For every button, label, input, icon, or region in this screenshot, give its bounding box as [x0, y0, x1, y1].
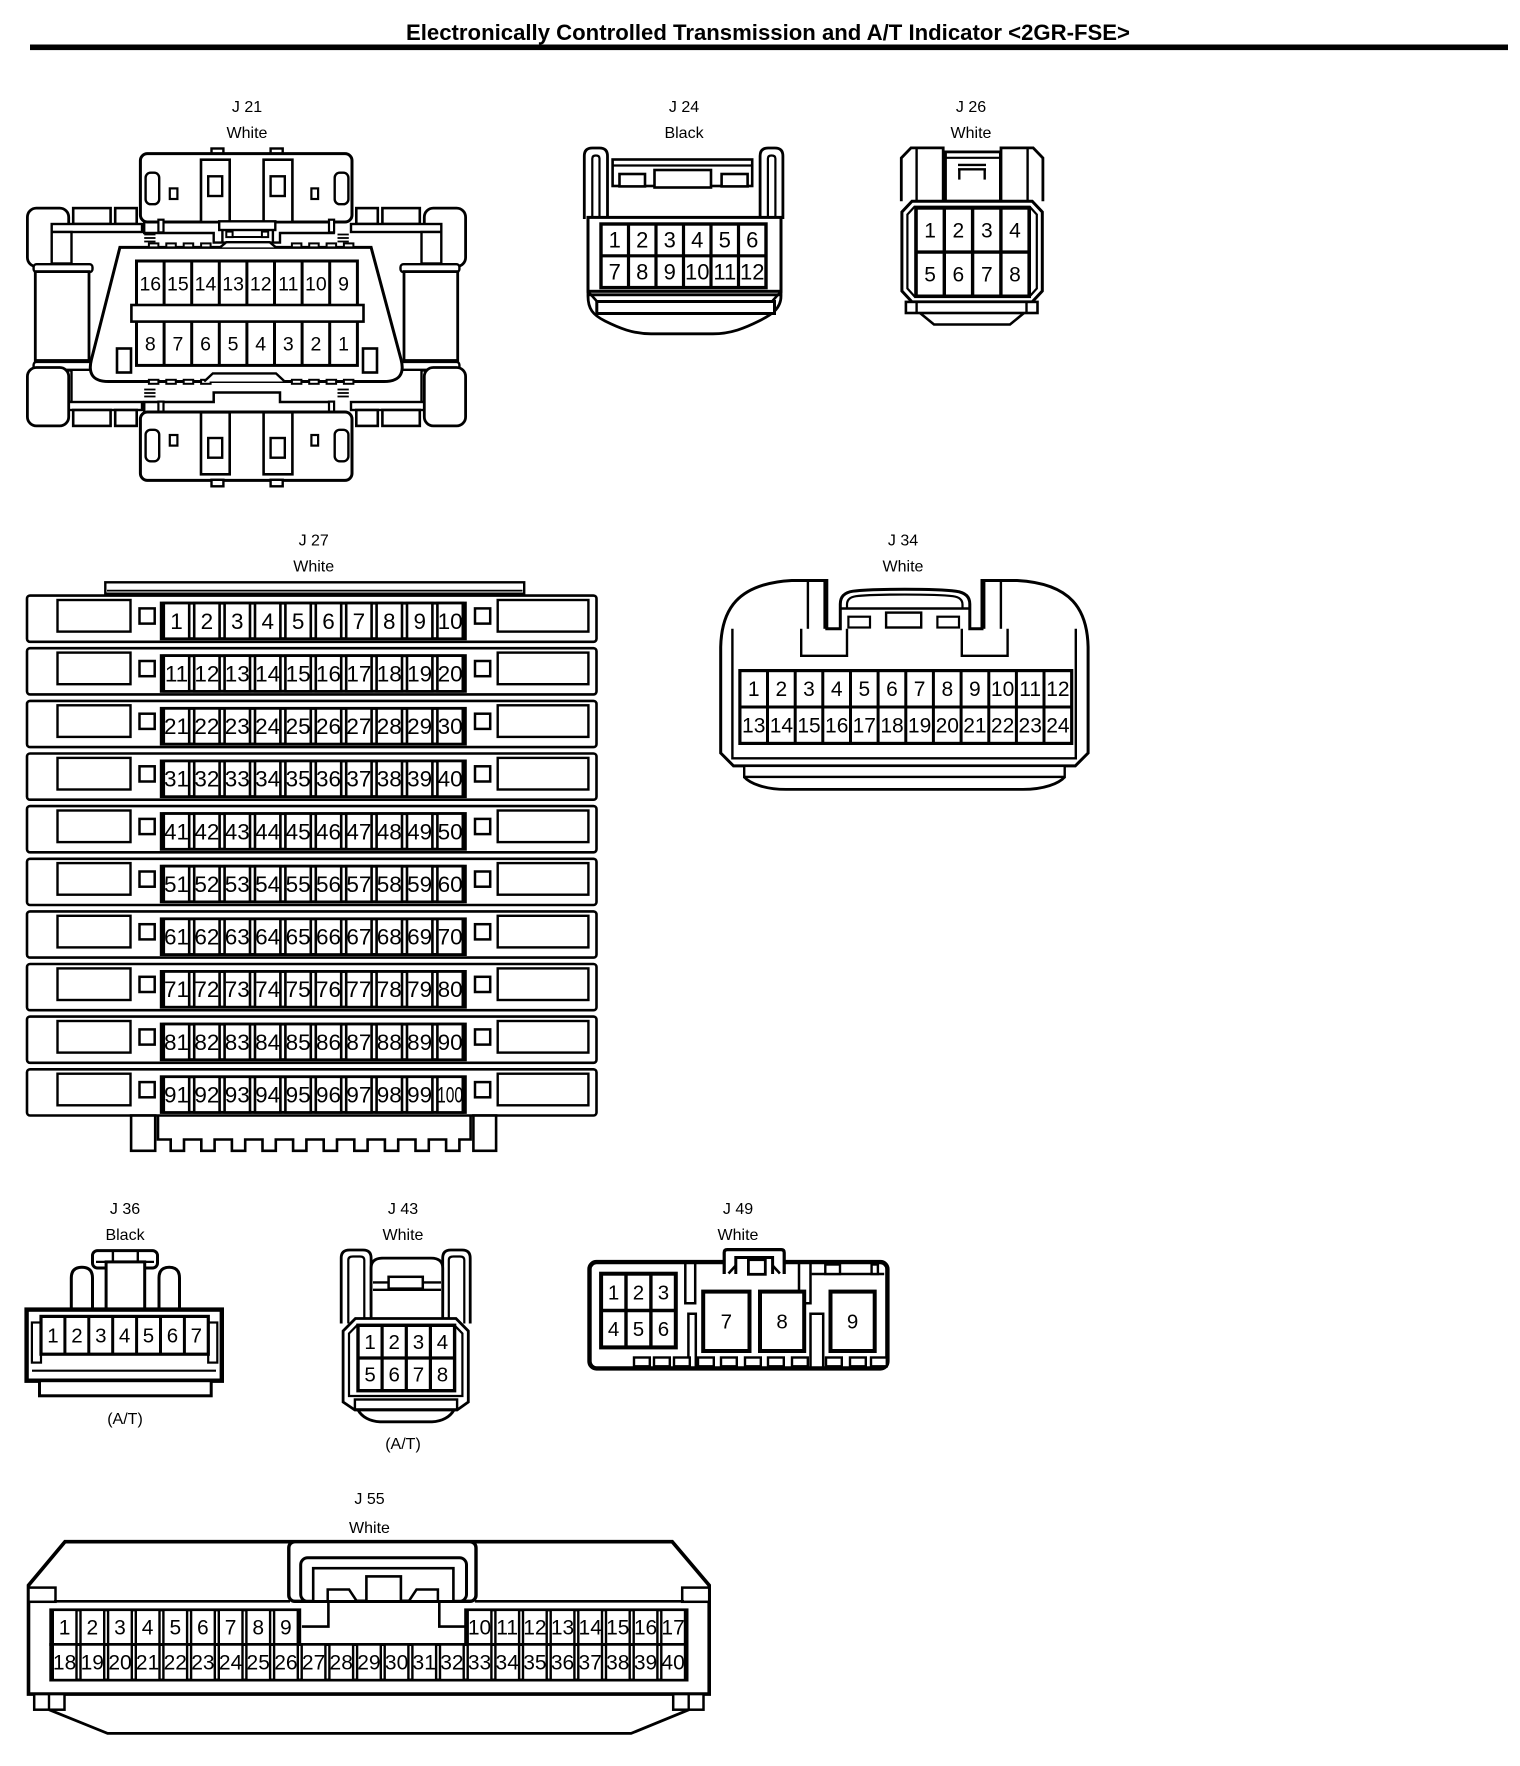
svg-text:Black: Black — [664, 125, 704, 142]
svg-text:60: 60 — [438, 872, 463, 897]
svg-text:20: 20 — [438, 661, 463, 686]
svg-text:(A/T): (A/T) — [385, 1436, 421, 1453]
svg-text:53: 53 — [225, 872, 250, 897]
svg-text:99: 99 — [407, 1083, 432, 1108]
svg-text:10: 10 — [685, 259, 709, 284]
svg-text:29: 29 — [407, 714, 432, 739]
svg-text:12: 12 — [740, 259, 764, 284]
svg-text:8: 8 — [941, 678, 953, 701]
svg-text:68: 68 — [377, 925, 402, 950]
svg-text:20: 20 — [936, 715, 959, 738]
svg-text:38: 38 — [377, 767, 402, 792]
svg-text:16: 16 — [825, 715, 848, 738]
svg-text:8: 8 — [776, 1311, 787, 1334]
svg-text:5: 5 — [719, 228, 731, 253]
svg-text:9: 9 — [280, 1617, 292, 1640]
svg-text:12: 12 — [250, 273, 272, 295]
svg-text:57: 57 — [346, 872, 371, 897]
svg-text:15: 15 — [606, 1617, 629, 1640]
svg-text:26: 26 — [274, 1652, 297, 1675]
svg-text:White: White — [951, 125, 992, 142]
svg-text:38: 38 — [606, 1652, 629, 1675]
svg-text:14: 14 — [770, 715, 794, 738]
svg-text:8: 8 — [1009, 264, 1021, 287]
svg-text:74: 74 — [255, 977, 280, 1002]
svg-text:52: 52 — [194, 872, 219, 897]
svg-text:63: 63 — [225, 925, 250, 950]
svg-text:12: 12 — [523, 1617, 546, 1640]
svg-text:15: 15 — [286, 661, 311, 686]
svg-text:16: 16 — [634, 1617, 657, 1640]
svg-text:J 55: J 55 — [354, 1491, 384, 1508]
svg-text:4: 4 — [255, 333, 266, 355]
svg-text:22: 22 — [194, 714, 219, 739]
svg-text:7: 7 — [191, 1325, 202, 1348]
svg-text:(A/T): (A/T) — [107, 1411, 143, 1428]
svg-text:Electronically Controlled Tran: Electronically Controlled Transmission a… — [406, 20, 1130, 45]
svg-text:White: White — [383, 1227, 424, 1244]
svg-text:3: 3 — [664, 228, 676, 253]
svg-text:23: 23 — [191, 1652, 214, 1675]
svg-text:11: 11 — [1019, 678, 1041, 701]
svg-text:41: 41 — [164, 819, 189, 844]
svg-text:26: 26 — [316, 714, 341, 739]
svg-text:1: 1 — [170, 609, 183, 634]
svg-text:93: 93 — [225, 1083, 250, 1108]
svg-text:6: 6 — [953, 264, 965, 287]
svg-text:J 49: J 49 — [723, 1201, 753, 1218]
svg-text:12: 12 — [1046, 678, 1069, 701]
svg-text:3: 3 — [658, 1281, 669, 1304]
svg-text:4: 4 — [437, 1331, 448, 1354]
svg-text:30: 30 — [385, 1652, 408, 1675]
svg-text:J 34: J 34 — [888, 533, 918, 550]
svg-text:Black: Black — [105, 1227, 145, 1244]
svg-text:6: 6 — [322, 609, 335, 634]
svg-text:3: 3 — [283, 333, 294, 355]
svg-text:20: 20 — [108, 1652, 131, 1675]
svg-text:2: 2 — [776, 678, 788, 701]
svg-text:37: 37 — [579, 1652, 602, 1675]
svg-text:61: 61 — [164, 925, 189, 950]
svg-text:19: 19 — [407, 661, 432, 686]
svg-text:19: 19 — [81, 1652, 104, 1675]
svg-text:39: 39 — [634, 1652, 657, 1675]
svg-text:35: 35 — [286, 767, 311, 792]
svg-text:5: 5 — [364, 1364, 375, 1387]
svg-text:5: 5 — [228, 333, 239, 355]
svg-text:16: 16 — [316, 661, 341, 686]
svg-text:J 26: J 26 — [956, 99, 986, 116]
svg-text:14: 14 — [195, 273, 217, 295]
svg-text:70: 70 — [438, 925, 463, 950]
svg-text:33: 33 — [468, 1652, 491, 1675]
svg-text:J 27: J 27 — [299, 533, 329, 550]
svg-text:White: White — [227, 125, 268, 142]
svg-text:18: 18 — [377, 661, 402, 686]
svg-text:10: 10 — [991, 678, 1014, 701]
svg-text:21: 21 — [164, 714, 189, 739]
svg-text:90: 90 — [438, 1030, 463, 1055]
svg-text:54: 54 — [255, 872, 280, 897]
svg-text:28: 28 — [330, 1652, 353, 1675]
svg-text:23: 23 — [1019, 715, 1042, 738]
svg-text:24: 24 — [219, 1652, 243, 1675]
svg-text:11: 11 — [165, 661, 188, 686]
svg-text:14: 14 — [579, 1617, 603, 1640]
svg-text:73: 73 — [225, 977, 250, 1002]
svg-text:49: 49 — [407, 819, 432, 844]
svg-text:84: 84 — [255, 1030, 280, 1055]
svg-text:5: 5 — [924, 264, 936, 287]
svg-text:13: 13 — [225, 661, 250, 686]
svg-text:2: 2 — [71, 1325, 82, 1348]
svg-text:3: 3 — [803, 678, 815, 701]
svg-text:47: 47 — [346, 819, 371, 844]
svg-text:4: 4 — [691, 228, 703, 253]
svg-text:36: 36 — [316, 767, 341, 792]
svg-text:13: 13 — [222, 273, 244, 295]
svg-text:6: 6 — [658, 1318, 669, 1341]
svg-text:17: 17 — [346, 661, 371, 686]
svg-text:50: 50 — [438, 819, 463, 844]
svg-text:8: 8 — [145, 333, 156, 355]
svg-text:80: 80 — [438, 977, 463, 1002]
svg-text:White: White — [718, 1227, 759, 1244]
svg-text:9: 9 — [338, 273, 349, 295]
svg-text:92: 92 — [194, 1083, 219, 1108]
svg-text:25: 25 — [286, 714, 311, 739]
svg-text:2: 2 — [633, 1281, 644, 1304]
svg-text:23: 23 — [225, 714, 250, 739]
svg-text:4: 4 — [831, 678, 843, 701]
svg-text:89: 89 — [407, 1030, 432, 1055]
svg-text:21: 21 — [136, 1652, 159, 1675]
svg-text:95: 95 — [286, 1083, 311, 1108]
svg-text:72: 72 — [194, 977, 219, 1002]
svg-text:7: 7 — [225, 1617, 237, 1640]
svg-text:5: 5 — [292, 609, 305, 634]
svg-text:9: 9 — [664, 259, 676, 284]
svg-text:86: 86 — [316, 1030, 341, 1055]
svg-text:18: 18 — [880, 715, 903, 738]
svg-text:13: 13 — [551, 1617, 574, 1640]
svg-text:11: 11 — [278, 273, 298, 295]
svg-text:5: 5 — [169, 1617, 181, 1640]
svg-text:4: 4 — [119, 1325, 130, 1348]
svg-text:64: 64 — [255, 925, 280, 950]
svg-text:9: 9 — [969, 678, 981, 701]
svg-text:3: 3 — [114, 1617, 126, 1640]
svg-text:7: 7 — [353, 609, 366, 634]
svg-text:6: 6 — [167, 1325, 178, 1348]
svg-text:17: 17 — [661, 1617, 684, 1640]
svg-text:7: 7 — [413, 1364, 424, 1387]
svg-text:34: 34 — [496, 1652, 520, 1675]
svg-text:White: White — [293, 559, 334, 576]
svg-text:36: 36 — [551, 1652, 574, 1675]
svg-text:67: 67 — [346, 925, 371, 950]
svg-text:17: 17 — [853, 715, 876, 738]
svg-text:6: 6 — [197, 1617, 209, 1640]
svg-text:34: 34 — [255, 767, 280, 792]
svg-text:27: 27 — [302, 1652, 325, 1675]
svg-text:7: 7 — [981, 264, 993, 287]
svg-text:6: 6 — [200, 333, 211, 355]
svg-text:76: 76 — [316, 977, 341, 1002]
svg-text:10: 10 — [305, 273, 327, 295]
svg-text:31: 31 — [164, 767, 189, 792]
svg-text:9: 9 — [847, 1311, 858, 1334]
svg-text:43: 43 — [225, 819, 250, 844]
svg-text:37: 37 — [346, 767, 371, 792]
svg-text:10: 10 — [468, 1617, 491, 1640]
svg-text:65: 65 — [286, 925, 311, 950]
svg-text:56: 56 — [316, 872, 341, 897]
svg-text:19: 19 — [908, 715, 931, 738]
svg-text:11: 11 — [713, 259, 736, 284]
svg-text:22: 22 — [164, 1652, 187, 1675]
svg-text:87: 87 — [346, 1030, 371, 1055]
svg-text:1: 1 — [608, 1281, 619, 1304]
svg-text:2: 2 — [310, 333, 321, 355]
svg-text:1: 1 — [47, 1325, 58, 1348]
svg-text:3: 3 — [231, 609, 244, 634]
svg-text:J 21: J 21 — [232, 99, 262, 116]
svg-text:42: 42 — [194, 819, 219, 844]
svg-text:9: 9 — [413, 609, 426, 634]
svg-text:15: 15 — [797, 715, 820, 738]
svg-text:J 24: J 24 — [669, 99, 699, 116]
svg-text:1: 1 — [59, 1617, 71, 1640]
svg-text:21: 21 — [963, 715, 986, 738]
svg-text:24: 24 — [1046, 715, 1070, 738]
svg-text:8: 8 — [383, 609, 396, 634]
svg-text:58: 58 — [377, 872, 402, 897]
svg-text:7: 7 — [172, 333, 183, 355]
svg-text:94: 94 — [255, 1083, 280, 1108]
svg-text:7: 7 — [914, 678, 926, 701]
svg-text:3: 3 — [413, 1331, 424, 1354]
svg-text:32: 32 — [194, 767, 219, 792]
svg-text:98: 98 — [377, 1083, 402, 1108]
svg-text:10: 10 — [438, 609, 463, 634]
svg-text:2: 2 — [636, 228, 648, 253]
svg-text:White: White — [349, 1520, 390, 1537]
svg-text:7: 7 — [609, 259, 621, 284]
svg-text:5: 5 — [633, 1318, 644, 1341]
svg-text:8: 8 — [252, 1617, 264, 1640]
svg-text:83: 83 — [225, 1030, 250, 1055]
svg-text:29: 29 — [357, 1652, 380, 1675]
svg-text:85: 85 — [286, 1030, 311, 1055]
svg-text:White: White — [883, 559, 924, 576]
svg-text:69: 69 — [407, 925, 432, 950]
svg-text:3: 3 — [981, 219, 993, 242]
svg-text:39: 39 — [407, 767, 432, 792]
svg-text:2: 2 — [953, 219, 965, 242]
svg-text:8: 8 — [437, 1364, 448, 1387]
svg-text:28: 28 — [377, 714, 402, 739]
svg-text:96: 96 — [316, 1083, 341, 1108]
svg-text:71: 71 — [164, 977, 189, 1002]
svg-text:8: 8 — [636, 259, 648, 284]
svg-text:1: 1 — [609, 228, 621, 253]
svg-text:6: 6 — [388, 1364, 399, 1387]
svg-text:91: 91 — [164, 1083, 189, 1108]
svg-text:1: 1 — [924, 219, 936, 242]
svg-text:78: 78 — [377, 977, 402, 1002]
svg-text:82: 82 — [194, 1030, 219, 1055]
svg-text:88: 88 — [377, 1030, 402, 1055]
svg-text:4: 4 — [1009, 219, 1021, 242]
svg-text:2: 2 — [86, 1617, 98, 1640]
svg-text:22: 22 — [991, 715, 1014, 738]
svg-text:14: 14 — [255, 661, 280, 686]
svg-text:1: 1 — [364, 1331, 375, 1354]
svg-text:62: 62 — [194, 925, 219, 950]
svg-text:5: 5 — [858, 678, 870, 701]
svg-text:J 43: J 43 — [388, 1201, 418, 1218]
svg-text:100: 100 — [437, 1083, 463, 1108]
svg-text:30: 30 — [438, 714, 463, 739]
svg-text:75: 75 — [286, 977, 311, 1002]
svg-text:7: 7 — [721, 1311, 732, 1334]
svg-text:55: 55 — [286, 872, 311, 897]
svg-text:46: 46 — [316, 819, 341, 844]
svg-text:51: 51 — [164, 872, 189, 897]
svg-text:1: 1 — [338, 333, 349, 355]
svg-text:45: 45 — [286, 819, 311, 844]
svg-text:40: 40 — [661, 1652, 684, 1675]
svg-text:66: 66 — [316, 925, 341, 950]
svg-text:79: 79 — [407, 977, 432, 1002]
svg-text:24: 24 — [255, 714, 280, 739]
svg-text:J 36: J 36 — [110, 1201, 140, 1218]
svg-text:31: 31 — [413, 1652, 436, 1675]
svg-text:81: 81 — [164, 1030, 189, 1055]
svg-text:15: 15 — [167, 273, 189, 295]
svg-text:3: 3 — [95, 1325, 106, 1348]
svg-text:5: 5 — [143, 1325, 154, 1348]
svg-text:59: 59 — [407, 872, 432, 897]
svg-text:4: 4 — [261, 609, 274, 634]
svg-text:1: 1 — [748, 678, 760, 701]
svg-text:44: 44 — [255, 819, 280, 844]
svg-text:48: 48 — [377, 819, 402, 844]
svg-text:2: 2 — [388, 1331, 399, 1354]
svg-text:2: 2 — [201, 609, 214, 634]
svg-text:40: 40 — [438, 767, 463, 792]
svg-text:97: 97 — [346, 1083, 371, 1108]
svg-text:16: 16 — [139, 273, 161, 295]
svg-text:6: 6 — [886, 678, 898, 701]
svg-text:4: 4 — [608, 1318, 619, 1341]
svg-text:35: 35 — [523, 1652, 546, 1675]
svg-text:32: 32 — [440, 1652, 463, 1675]
svg-text:12: 12 — [194, 661, 219, 686]
svg-text:6: 6 — [746, 228, 758, 253]
svg-text:13: 13 — [742, 715, 765, 738]
svg-text:27: 27 — [346, 714, 371, 739]
svg-text:77: 77 — [346, 977, 371, 1002]
svg-text:18: 18 — [53, 1652, 76, 1675]
svg-text:4: 4 — [142, 1617, 154, 1640]
svg-text:25: 25 — [247, 1652, 270, 1675]
svg-text:11: 11 — [496, 1617, 518, 1640]
svg-text:33: 33 — [225, 767, 250, 792]
